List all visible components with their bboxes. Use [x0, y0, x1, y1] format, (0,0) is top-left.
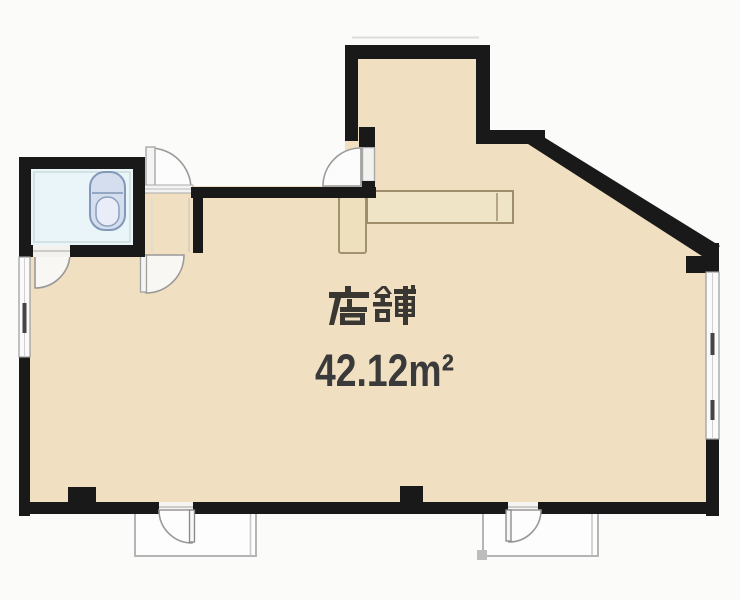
svg-text:42.12m²: 42.12m²: [315, 345, 454, 396]
